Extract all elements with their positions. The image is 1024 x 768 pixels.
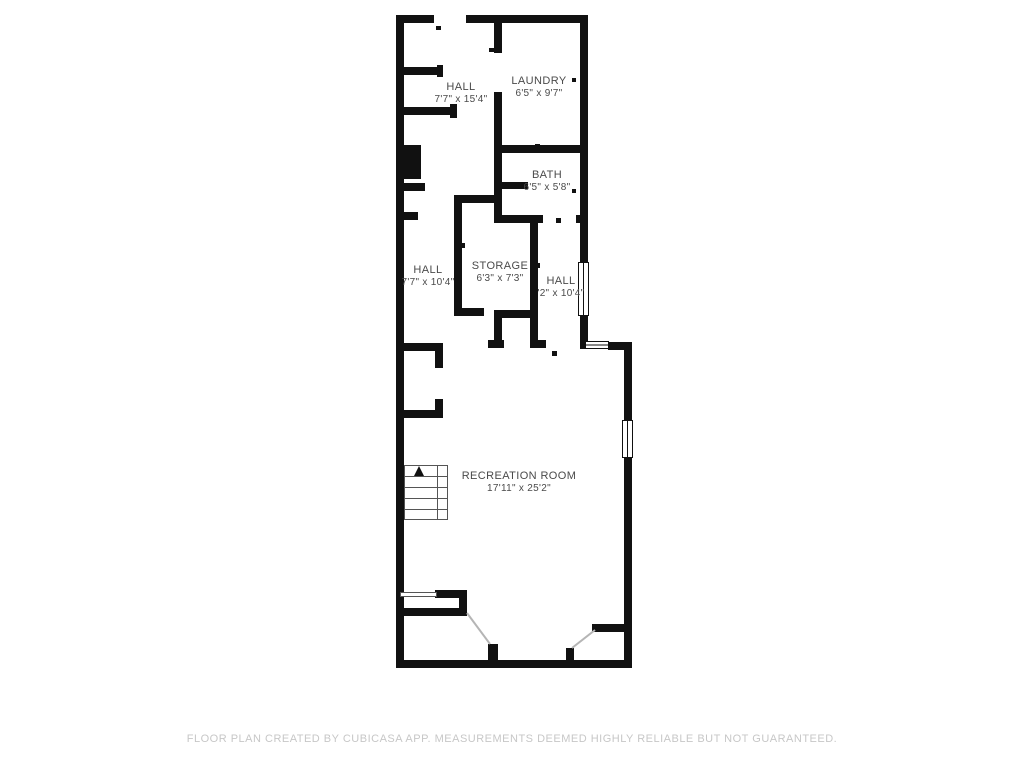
room-name: STORAGE [472, 260, 528, 273]
floor-plan: HALL 7'7" x 15'4" LAUNDRY 6'5" x 9'7" BA… [0, 0, 1024, 768]
room-dims: 6'5" x 5'8" [523, 182, 570, 194]
room-dims: 7'7" x 10'4" [402, 277, 455, 289]
room-label-hall-right: HALL '2" x 10'4" [537, 275, 584, 300]
room-dims: 17'11" x 25'2" [462, 483, 577, 495]
staircase-symbol [405, 466, 448, 520]
chimney-block [398, 145, 421, 179]
window-icon-recroom-right [623, 421, 633, 458]
door-frame-ticks [436, 26, 576, 665]
room-name: HALL [435, 81, 488, 94]
door-swing-left [467, 613, 490, 644]
room-label-hall-middle: HALL 7'7" x 10'4" [402, 264, 455, 289]
room-name: HALL [402, 264, 455, 277]
room-name: BATH [523, 169, 570, 182]
room-name: RECREATION ROOM [462, 470, 577, 483]
window-icon-recroom-top [586, 342, 609, 349]
room-name: LAUNDRY [511, 75, 566, 88]
disclaimer-text: FLOOR PLAN CREATED BY CUBICASA APP. MEAS… [0, 733, 1024, 745]
floor-plan-drawing [0, 0, 1024, 768]
opening-symbol [401, 593, 437, 597]
room-label-storage: STORAGE 6'3" x 7'3" [472, 260, 528, 285]
room-label-bath: BATH 6'5" x 5'8" [523, 169, 570, 194]
room-label-recreation-room: RECREATION ROOM 17'11" x 25'2" [462, 470, 577, 495]
room-label-hall-upper: HALL 7'7" x 15'4" [435, 81, 488, 106]
door-swing-right [572, 630, 595, 648]
room-dims: 6'3" x 7'3" [472, 273, 528, 285]
room-dims: 7'7" x 15'4" [435, 94, 488, 106]
room-dims: 6'5" x 9'7" [511, 88, 566, 100]
room-name: HALL [537, 275, 584, 288]
room-label-laundry: LAUNDRY 6'5" x 9'7" [511, 75, 566, 100]
room-dims: '2" x 10'4" [537, 288, 584, 300]
